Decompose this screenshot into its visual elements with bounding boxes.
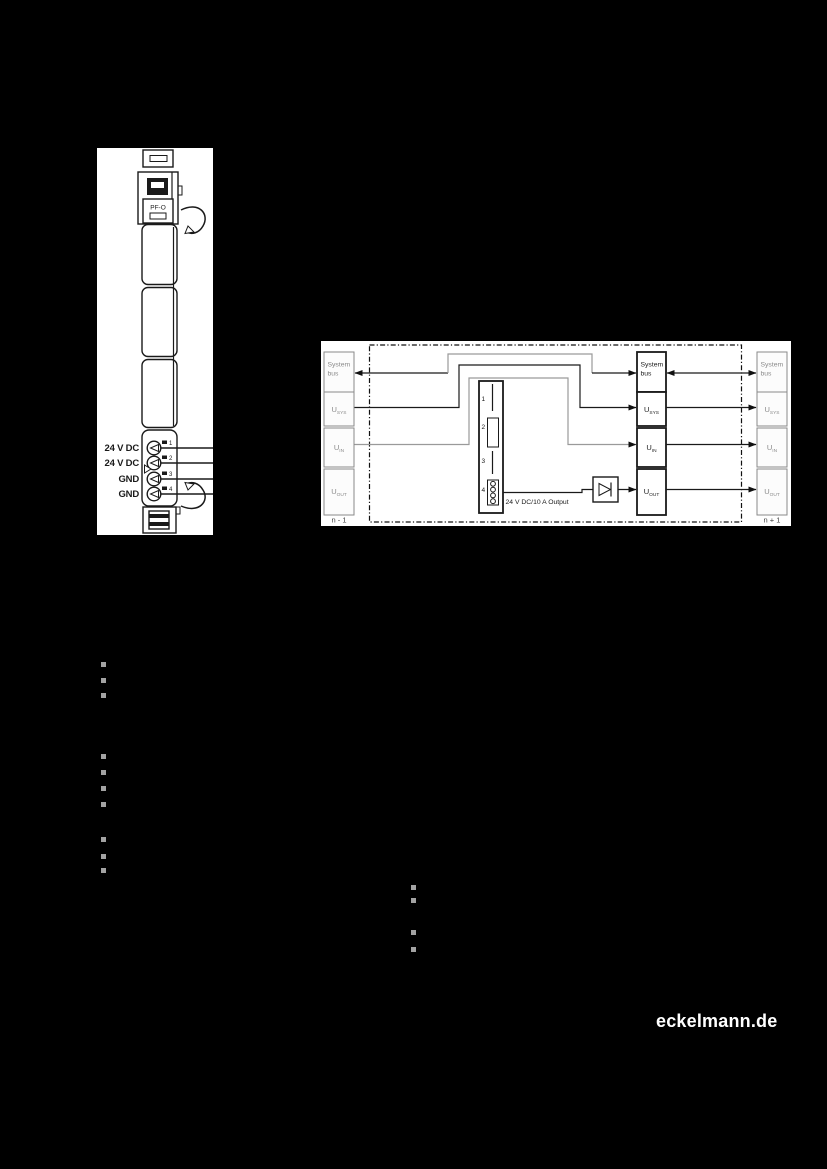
module-body	[142, 225, 177, 428]
system-bus-route	[355, 354, 756, 373]
terminal-row-2: 2	[147, 456, 213, 470]
block-diagram: 1 2 3 4 24 V DC/10 A Output Syst	[321, 341, 791, 526]
list-bullet	[101, 678, 106, 683]
module-column-next: System bus USYS UIN UOUT n + 1	[757, 352, 787, 525]
list-bullet	[101, 786, 106, 791]
block-label: bus	[641, 371, 653, 378]
module-boundary-dashed-box	[370, 345, 742, 522]
terminal-label: 24 V DC	[104, 458, 139, 469]
module-head: PF-O	[138, 172, 182, 224]
terminal-row-3: 3	[147, 472, 213, 486]
module-figure: PF-O	[97, 148, 213, 535]
pin-number: 2	[482, 424, 486, 431]
din-clip-top	[143, 150, 173, 167]
led-4	[162, 487, 167, 491]
block-label: System	[761, 362, 784, 369]
module-drawing: PF-O	[97, 148, 213, 535]
module-column-current: System bus USYS UIN UOUT	[637, 352, 666, 515]
pin-number: 3	[482, 458, 486, 465]
list-bullet	[411, 930, 416, 935]
block-label: bus	[328, 371, 340, 378]
list-bullet	[101, 662, 106, 667]
uout-route	[503, 490, 756, 493]
block-label: bus	[761, 371, 773, 378]
connector-strip: 1 2 3 4	[479, 381, 503, 513]
terminal-label: GND	[118, 489, 139, 500]
usys-route	[354, 365, 756, 408]
block-label: System	[641, 362, 664, 369]
list-bullet	[101, 854, 106, 859]
insert-arrow-bottom-icon	[181, 483, 205, 509]
output-label: 24 V DC/10 A Output	[506, 499, 569, 506]
led-1	[162, 441, 167, 445]
list-bullet	[411, 947, 416, 952]
pin-number: 4	[482, 487, 486, 494]
module-index-prev: n - 1	[331, 516, 346, 525]
module-index-next: n + 1	[764, 516, 781, 525]
terminal-row-1: 1	[147, 441, 213, 455]
terminal-label: 24 V DC	[104, 443, 139, 454]
list-bullet	[101, 693, 106, 698]
diode-symbol	[593, 477, 618, 502]
brand-logo-text: eckelmann.de	[656, 1011, 786, 1032]
list-bullet	[101, 802, 106, 807]
list-bullet	[101, 770, 106, 775]
block-label: System	[328, 362, 351, 369]
list-bullet	[411, 885, 416, 890]
terminal-row-4: 4	[147, 487, 213, 501]
list-bullet	[101, 837, 106, 842]
terminal-label: GND	[118, 474, 139, 485]
document-page: PF-O	[0, 0, 827, 1169]
block-diagram-figure: 1 2 3 4 24 V DC/10 A Output Syst	[321, 341, 791, 526]
din-clip-bottom	[143, 507, 180, 533]
terminal-block: 1 2 3	[104, 430, 213, 506]
list-bullet	[101, 754, 106, 759]
led-2	[162, 456, 167, 460]
led-3	[162, 472, 167, 476]
pin-number: 1	[482, 396, 486, 403]
list-bullet	[101, 868, 106, 873]
plate-text: PF-O	[150, 205, 166, 212]
insert-arrow-top-icon	[181, 207, 205, 233]
list-bullet	[411, 898, 416, 903]
uin-route	[354, 378, 756, 445]
module-column-prev: System bus USYS UIN UOUT n - 1	[324, 352, 354, 525]
